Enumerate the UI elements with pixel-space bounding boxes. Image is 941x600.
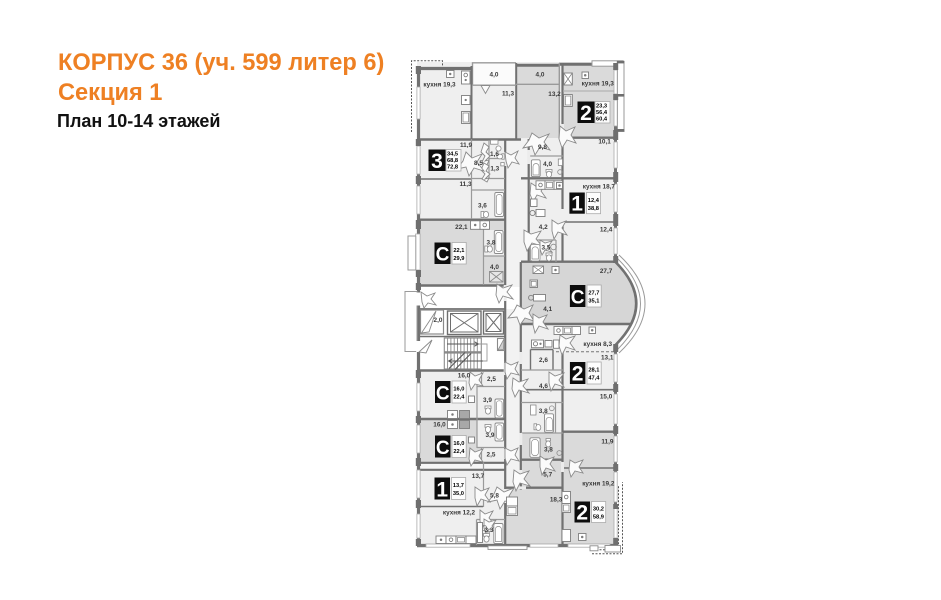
svg-text:15,0: 15,0 bbox=[600, 394, 613, 401]
svg-text:3,9: 3,9 bbox=[486, 432, 495, 439]
svg-text:3,3: 3,3 bbox=[485, 527, 494, 534]
svg-text:2,5: 2,5 bbox=[487, 376, 496, 383]
svg-text:38,8: 38,8 bbox=[588, 206, 599, 212]
svg-text:22,1: 22,1 bbox=[455, 224, 468, 231]
svg-text:23,3: 23,3 bbox=[596, 104, 607, 110]
svg-text:3,5: 3,5 bbox=[542, 245, 551, 252]
svg-text:1: 1 bbox=[571, 193, 583, 216]
svg-text:11,9: 11,9 bbox=[601, 439, 614, 446]
svg-text:С: С bbox=[436, 245, 450, 266]
svg-text:34,5: 34,5 bbox=[447, 152, 458, 158]
svg-text:2,6: 2,6 bbox=[539, 357, 548, 364]
svg-text:5,8: 5,8 bbox=[490, 493, 499, 500]
svg-text:13,7: 13,7 bbox=[453, 483, 464, 489]
svg-text:27,7: 27,7 bbox=[600, 268, 613, 275]
svg-text:22,4: 22,4 bbox=[453, 395, 465, 401]
svg-text:35,0: 35,0 bbox=[453, 491, 464, 497]
svg-text:3,9: 3,9 bbox=[483, 397, 492, 404]
svg-text:8,5: 8,5 bbox=[474, 160, 483, 167]
svg-text:3,6: 3,6 bbox=[478, 202, 487, 209]
svg-text:18,3: 18,3 bbox=[550, 496, 563, 503]
svg-text:9,8: 9,8 bbox=[538, 144, 547, 151]
svg-text:16,0: 16,0 bbox=[458, 373, 471, 380]
svg-text:4,1: 4,1 bbox=[543, 306, 552, 313]
svg-text:13,2: 13,2 bbox=[548, 91, 561, 98]
svg-text:22,4: 22,4 bbox=[453, 449, 465, 455]
svg-text:4,2: 4,2 bbox=[539, 224, 548, 231]
svg-text:кухня 19,2: кухня 19,2 bbox=[582, 481, 615, 488]
svg-text:27,7: 27,7 bbox=[588, 291, 599, 297]
svg-text:2: 2 bbox=[576, 502, 588, 525]
svg-text:68,8: 68,8 bbox=[447, 158, 458, 164]
svg-text:10,1: 10,1 bbox=[598, 138, 611, 145]
svg-text:5,7: 5,7 bbox=[543, 472, 552, 479]
svg-text:2,0: 2,0 bbox=[434, 317, 443, 324]
svg-text:С: С bbox=[436, 438, 450, 459]
svg-text:22,1: 22,1 bbox=[453, 248, 464, 254]
svg-text:16,0: 16,0 bbox=[453, 441, 464, 447]
svg-text:4,0: 4,0 bbox=[490, 72, 499, 79]
svg-text:2,5: 2,5 bbox=[487, 452, 496, 459]
svg-text:35,1: 35,1 bbox=[588, 299, 599, 305]
svg-text:С: С bbox=[436, 384, 450, 405]
svg-text:30,2: 30,2 bbox=[593, 507, 604, 513]
svg-text:3,8: 3,8 bbox=[544, 446, 553, 453]
svg-text:кухня 18,7: кухня 18,7 bbox=[583, 184, 616, 191]
svg-text:2: 2 bbox=[572, 363, 584, 386]
svg-text:2: 2 bbox=[580, 102, 592, 125]
svg-text:кухня 19,3: кухня 19,3 bbox=[423, 82, 456, 89]
svg-text:12,4: 12,4 bbox=[588, 198, 600, 204]
svg-text:11,3: 11,3 bbox=[459, 181, 472, 188]
svg-text:кухня 12,2: кухня 12,2 bbox=[443, 510, 476, 517]
svg-text:4,0: 4,0 bbox=[490, 264, 499, 271]
svg-text:1,6: 1,6 bbox=[490, 151, 499, 158]
svg-text:16,0: 16,0 bbox=[433, 422, 446, 429]
svg-text:3: 3 bbox=[431, 150, 443, 173]
svg-text:58,9: 58,9 bbox=[593, 515, 604, 521]
svg-text:3,8: 3,8 bbox=[487, 240, 496, 247]
svg-text:1,3: 1,3 bbox=[490, 165, 499, 172]
svg-text:1: 1 bbox=[436, 479, 448, 502]
svg-text:кухня 19,3: кухня 19,3 bbox=[582, 80, 615, 87]
svg-text:13,7: 13,7 bbox=[472, 473, 485, 480]
svg-text:11,3: 11,3 bbox=[502, 91, 515, 98]
svg-text:72,8: 72,8 bbox=[447, 165, 458, 171]
svg-text:С: С bbox=[571, 288, 585, 309]
svg-text:60,4: 60,4 bbox=[596, 117, 608, 123]
svg-text:13,1: 13,1 bbox=[601, 355, 614, 362]
svg-text:12,4: 12,4 bbox=[600, 227, 613, 234]
svg-text:4,6: 4,6 bbox=[539, 383, 548, 390]
svg-text:4,0: 4,0 bbox=[543, 161, 552, 168]
svg-text:47,4: 47,4 bbox=[588, 376, 600, 382]
svg-text:56,4: 56,4 bbox=[596, 110, 608, 116]
svg-text:11,9: 11,9 bbox=[460, 142, 473, 149]
svg-text:кухня 8,3: кухня 8,3 bbox=[583, 341, 612, 348]
svg-text:28,1: 28,1 bbox=[588, 368, 599, 374]
svg-text:16,0: 16,0 bbox=[453, 387, 464, 393]
svg-text:29,9: 29,9 bbox=[453, 256, 464, 262]
svg-text:3,8: 3,8 bbox=[539, 408, 548, 415]
svg-text:4,0: 4,0 bbox=[536, 72, 545, 79]
